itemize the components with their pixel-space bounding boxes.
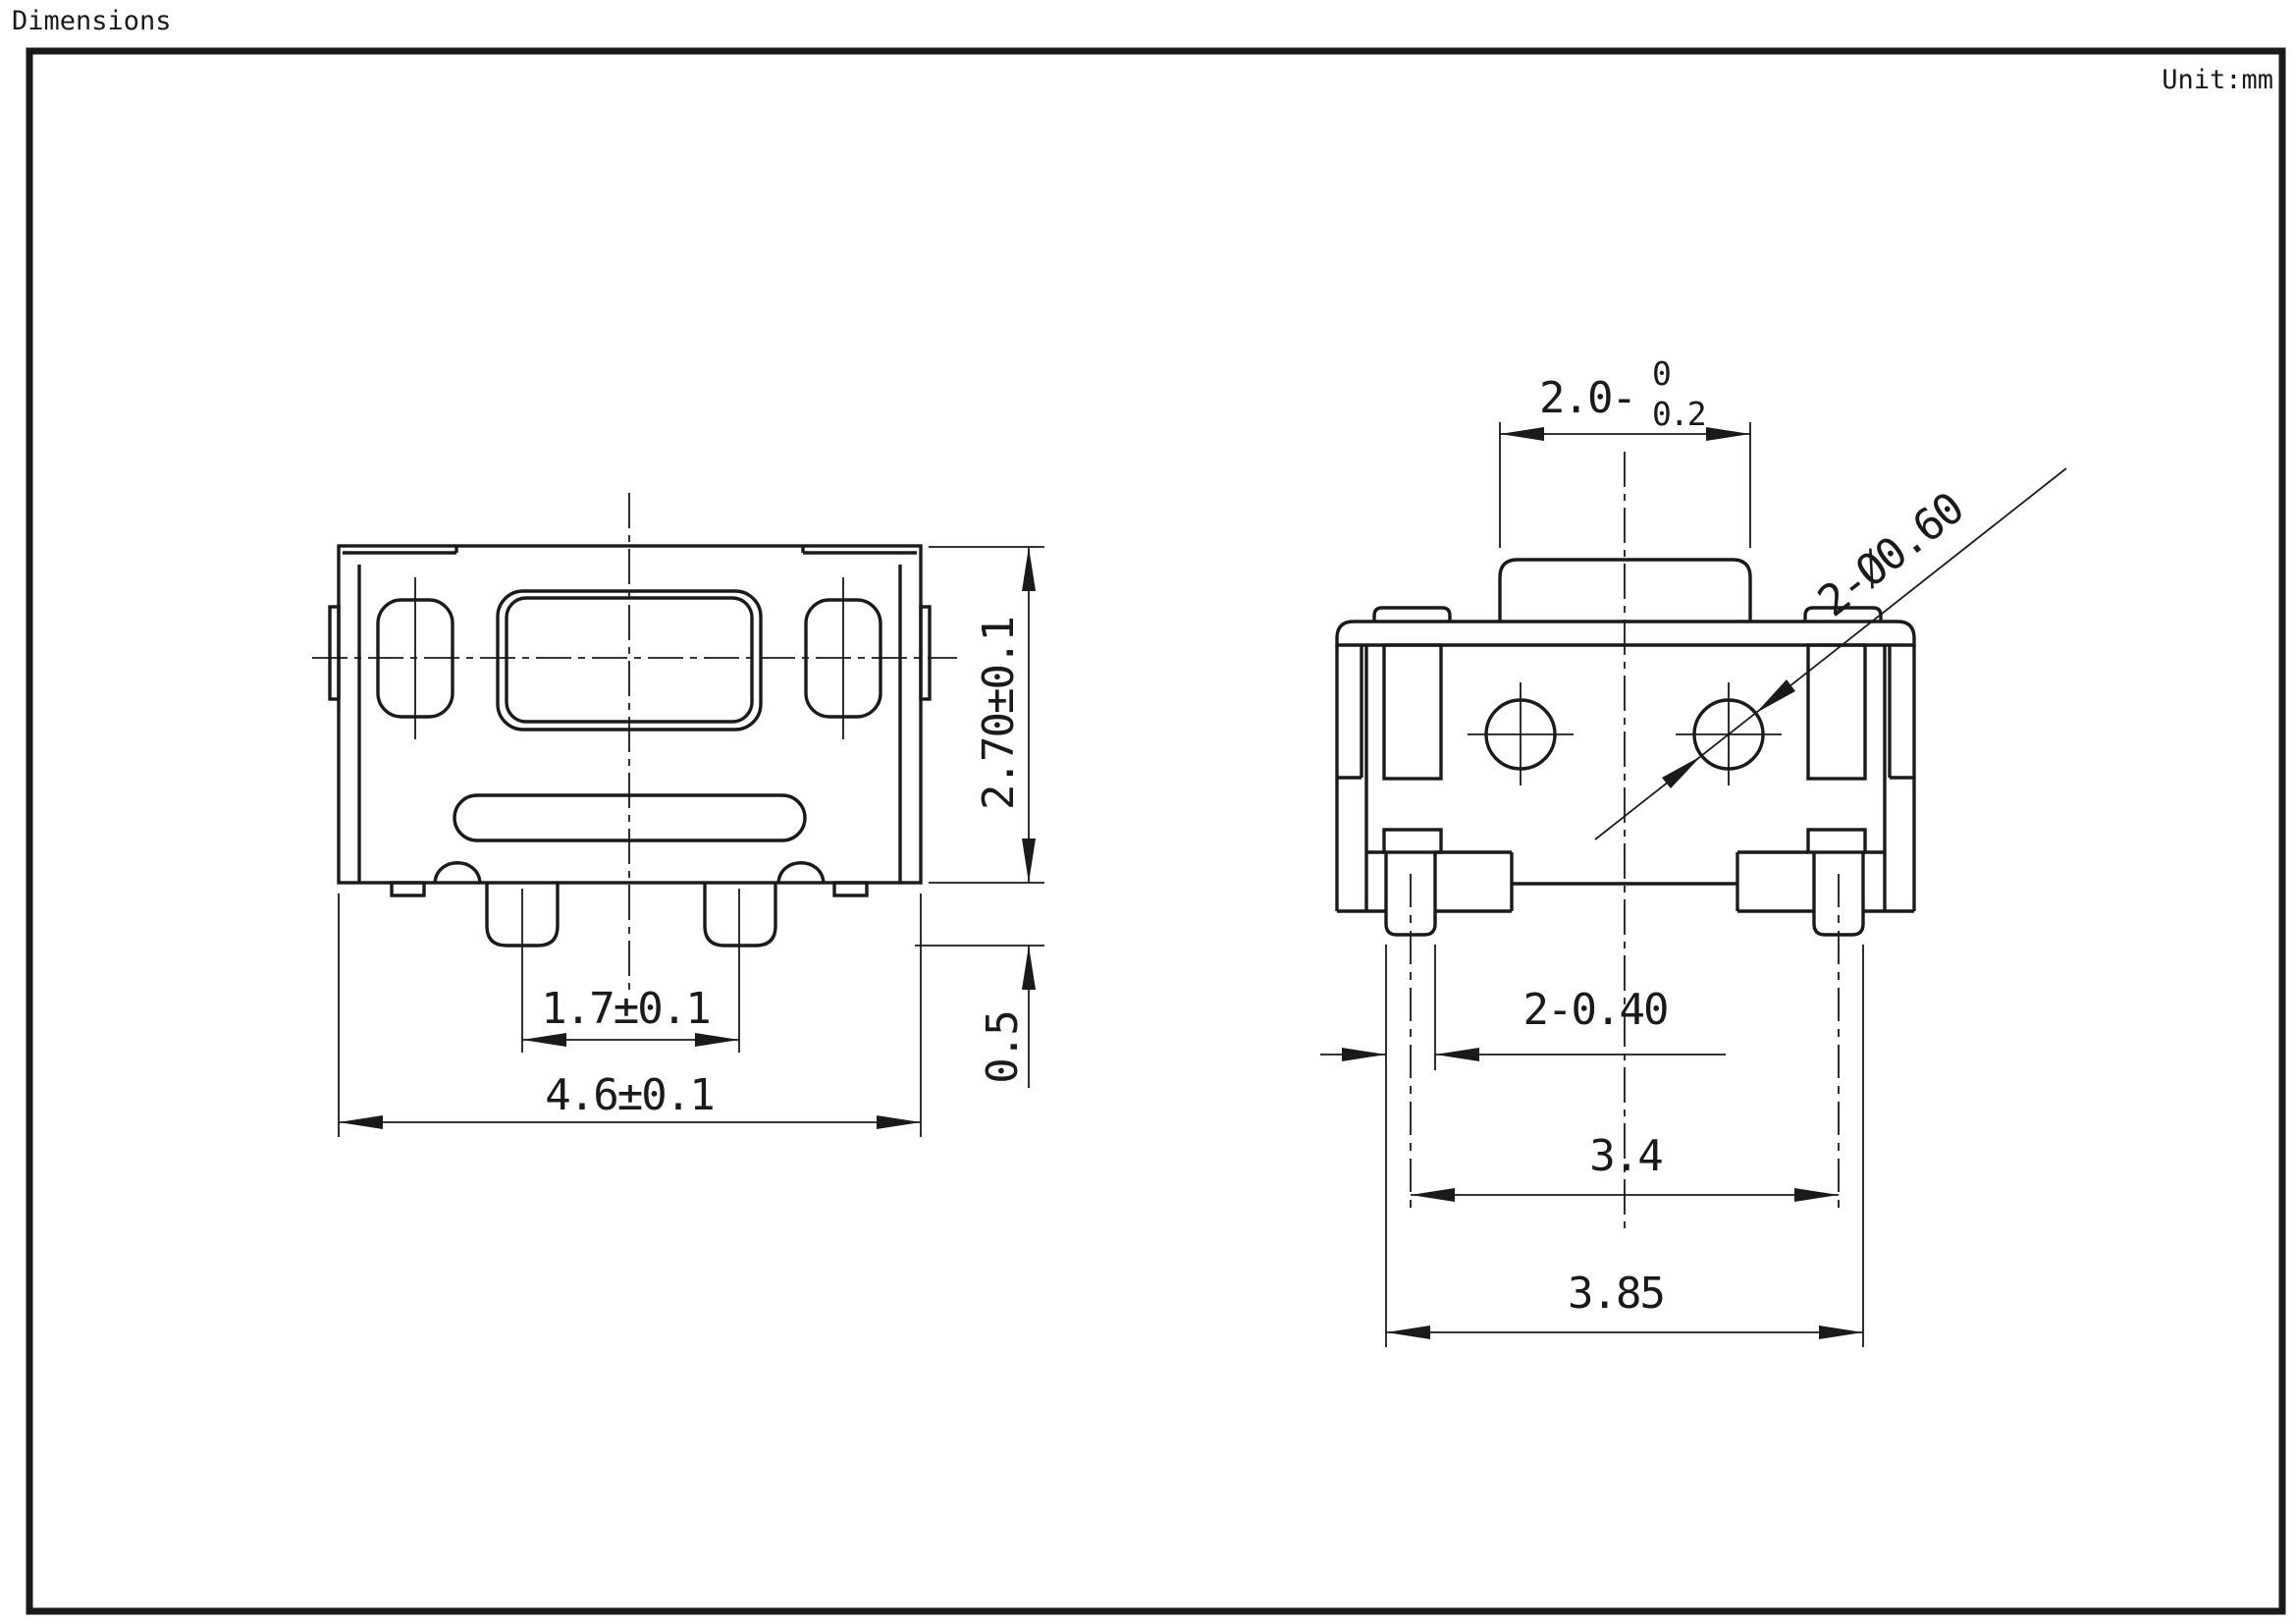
left-top-tab bbox=[1374, 608, 1450, 622]
dim-pin-width: 2-0.40 bbox=[1523, 985, 1668, 1035]
left-side-bump bbox=[330, 607, 339, 699]
dim-body-height: 2.70±0.1 bbox=[974, 618, 1024, 810]
dim-hole-callout: 2-Ø0.60 bbox=[1809, 484, 1972, 627]
cap-outline bbox=[1337, 622, 1914, 645]
left-bottom-tab bbox=[392, 883, 424, 895]
right-leg bbox=[705, 883, 775, 946]
top-view-centerlines bbox=[312, 493, 957, 1053]
dimension-drawing: Dimensions Unit:mm bbox=[0, 0, 2296, 1624]
sheet-title: Dimensions bbox=[12, 6, 172, 36]
front-view-centerlines bbox=[1411, 452, 1839, 1232]
right-bottom-tab bbox=[834, 883, 867, 895]
unit-label: Unit:mm bbox=[2162, 65, 2273, 95]
dim-leg-pitch: 1.7±0.1 bbox=[541, 984, 709, 1034]
dim-body-width: 4.6±0.1 bbox=[545, 1070, 713, 1120]
dim-leg-height: 0.5 bbox=[978, 1011, 1028, 1083]
right-side-bump bbox=[921, 607, 930, 699]
dim-pin-span: 3.85 bbox=[1568, 1269, 1664, 1319]
left-wall-column bbox=[1384, 645, 1441, 779]
hole-leader-line bbox=[1595, 468, 2066, 839]
dim-stem-tol-upper: 0 bbox=[1652, 354, 1670, 393]
dim-stem-width: 2.0- 0 0.2 bbox=[1539, 354, 1705, 433]
dim-stem-tol-lower: 0.2 bbox=[1652, 395, 1705, 433]
dim-stem-width-nominal: 2.0- bbox=[1539, 373, 1635, 423]
front-view-outline bbox=[1337, 560, 1914, 935]
left-step bbox=[1384, 830, 1441, 852]
dim-pin-pitch: 3.4 bbox=[1589, 1131, 1662, 1181]
left-hump bbox=[435, 863, 480, 883]
drawing-frame bbox=[29, 51, 2282, 1611]
right-step bbox=[1808, 830, 1865, 852]
right-hump bbox=[778, 863, 824, 883]
